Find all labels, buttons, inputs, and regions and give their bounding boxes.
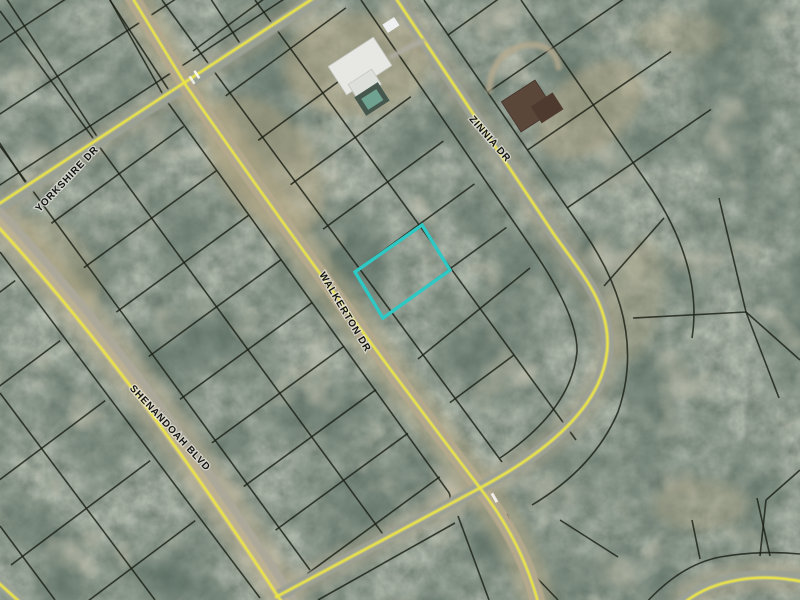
aerial-parcel-map: YORKSHIRE DR WALKERTON DR SHENANDOAH BLV… <box>0 0 800 600</box>
map-viewport[interactable]: YORKSHIRE DR WALKERTON DR SHENANDOAH BLV… <box>0 0 800 600</box>
aerial-basemap <box>0 0 800 600</box>
